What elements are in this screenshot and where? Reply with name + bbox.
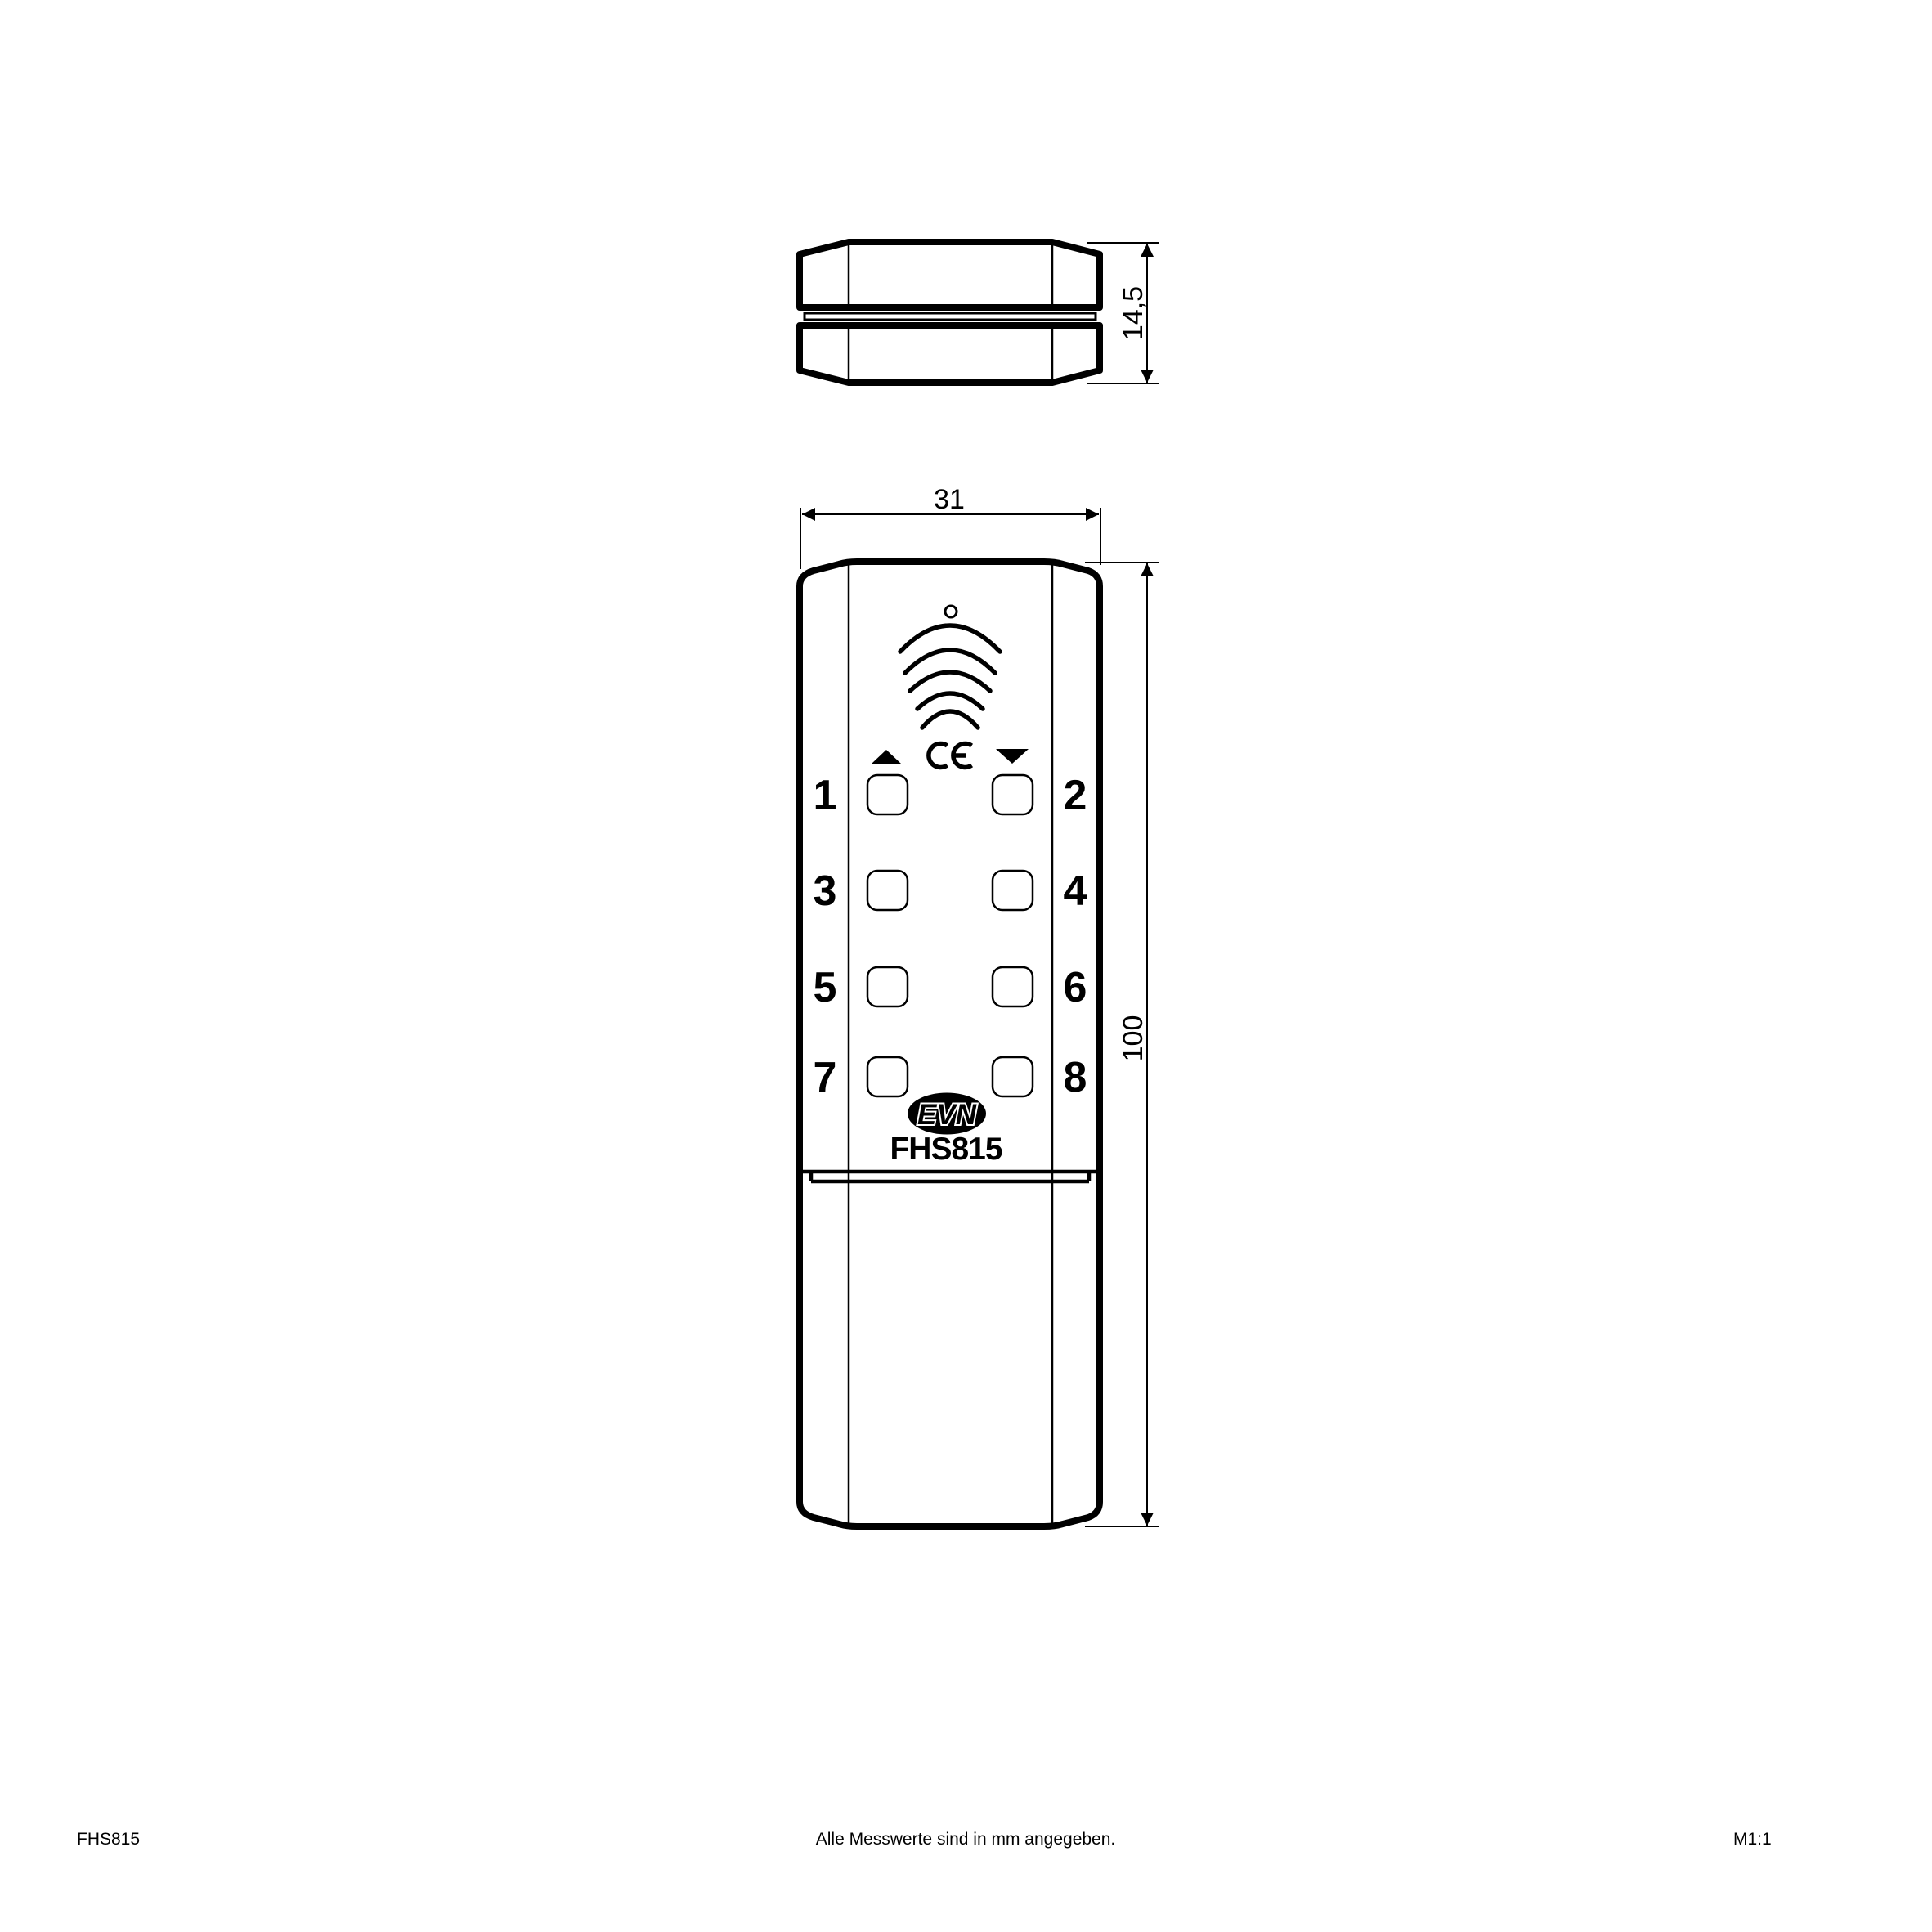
dimension-front-width: 31 (800, 484, 1100, 569)
button-5-label: 5 (814, 964, 837, 1011)
side-view-seam (805, 313, 1096, 320)
button-7 (867, 1057, 908, 1096)
arrowhead-left (802, 508, 815, 521)
front-view: 1 2 3 4 5 6 7 8 EVN FHS815 (800, 562, 1100, 1526)
footer-product-code: FHS815 (77, 1830, 140, 1849)
front-height-dimension-label: 100 (1118, 1015, 1149, 1062)
button-3 (867, 871, 908, 910)
arrowhead-up (1141, 563, 1154, 576)
button-6-label: 6 (1064, 964, 1087, 1011)
side-view-bottom-shell (800, 325, 1100, 383)
arrowhead-right (1086, 508, 1099, 521)
button-5 (867, 967, 908, 1006)
side-height-dimension-label: 14,5 (1118, 286, 1149, 340)
led-indicator (945, 606, 957, 617)
side-view (800, 242, 1100, 383)
button-4-label: 4 (1064, 867, 1087, 915)
button-7-label: 7 (814, 1054, 837, 1101)
button-8-label: 8 (1064, 1054, 1087, 1101)
footer: FHS815 Alle Messwerte sind in mm angegeb… (77, 1830, 1772, 1849)
footer-note: Alle Messwerte sind in mm angegeben. (816, 1830, 1116, 1849)
brand-logo: EVN (908, 1093, 986, 1135)
arrowhead-down (1141, 370, 1154, 383)
model-label: FHS815 (890, 1132, 1002, 1167)
button-2 (993, 775, 1033, 814)
arrowhead-up (1141, 244, 1154, 257)
footer-scale: M1:1 (1733, 1830, 1772, 1849)
button-8 (993, 1057, 1033, 1096)
front-width-dimension-label: 31 (934, 484, 965, 515)
technical-drawing: 14,5 31 100 (0, 0, 1932, 1932)
brand-logo-text: EVN (917, 1099, 977, 1131)
button-3-label: 3 (814, 867, 837, 915)
button-1-label: 1 (814, 772, 837, 819)
button-2-label: 2 (1064, 772, 1087, 819)
arrowhead-down (1141, 1513, 1154, 1526)
button-6 (993, 967, 1033, 1006)
side-view-top-shell (800, 242, 1100, 307)
button-4 (993, 871, 1033, 910)
front-view-body (800, 562, 1100, 1526)
button-1 (867, 775, 908, 814)
